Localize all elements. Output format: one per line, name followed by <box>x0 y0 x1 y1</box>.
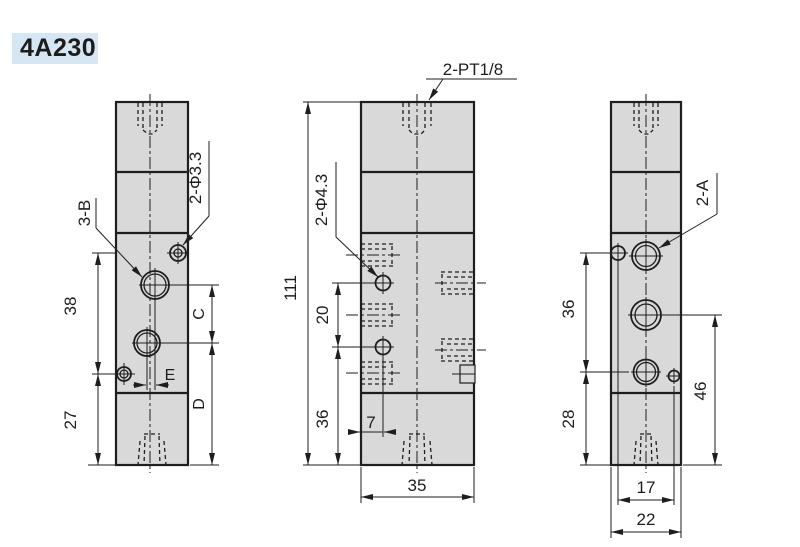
front-view: 111 20 36 7 35 <box>281 60 517 503</box>
holes-label: 2-Φ3.3 <box>186 152 205 204</box>
dim-36-label: 36 <box>313 410 332 429</box>
callout-2-PT18: 2-PT1/8 <box>426 60 517 100</box>
dim-e-label: E <box>165 367 176 384</box>
dim-22-label: 22 <box>637 510 656 529</box>
left-side-view: 38 27 C D E 3-B <box>61 94 219 473</box>
dim-111-label: 111 <box>281 275 300 301</box>
dim-17-label: 17 <box>637 478 656 497</box>
top-ports-label: 2-PT1/8 <box>443 60 503 79</box>
dim-46-label: 46 <box>691 382 710 401</box>
dim-7-label: 7 <box>366 413 375 432</box>
valve-body-left <box>116 102 188 465</box>
ports-label: 2-A <box>693 179 712 206</box>
dim-c-label: C <box>191 308 208 320</box>
dim-35-label: 35 <box>408 476 427 495</box>
technical-drawing: 38 27 C D E 3-B <box>0 0 800 547</box>
dim-20-label: 20 <box>313 306 332 325</box>
dim-d-label: D <box>191 398 208 410</box>
drawing-sheet: 4A230 <box>0 0 800 547</box>
dim-36-label: 36 <box>559 300 578 319</box>
dim-38-27: 38 27 <box>61 253 116 465</box>
dim-38-label: 38 <box>61 297 80 316</box>
ports-label: 3-B <box>75 200 94 226</box>
dim-27-label: 27 <box>61 411 80 430</box>
right-side-view: 36 28 46 17 22 2-A <box>559 94 722 538</box>
dim-28-label: 28 <box>559 410 578 429</box>
holes-label: 2-Φ4.3 <box>312 174 331 226</box>
